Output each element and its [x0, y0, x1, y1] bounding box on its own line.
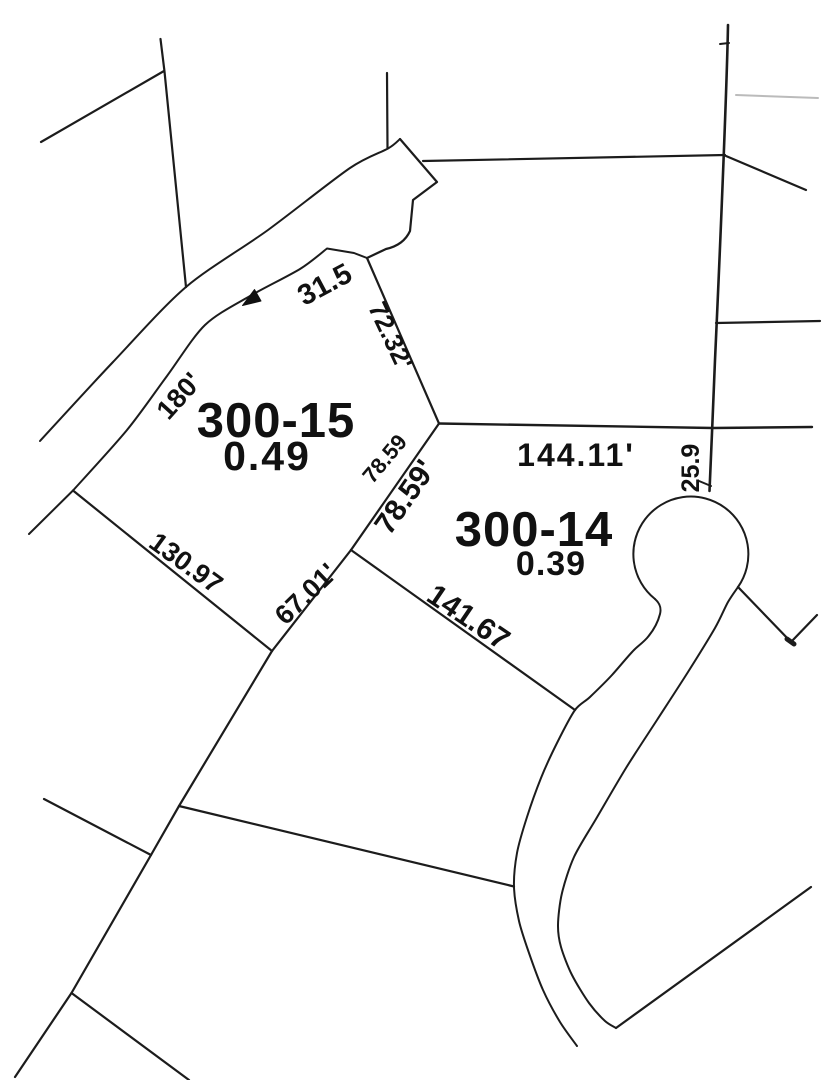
- svg-text:25.9: 25.9: [677, 444, 705, 493]
- svg-text:72.32': 72.32': [362, 297, 419, 374]
- svg-text:0.49: 0.49: [223, 433, 311, 479]
- svg-text:130.97: 130.97: [144, 527, 228, 600]
- svg-text:144.11': 144.11': [517, 437, 635, 473]
- svg-text:31.5: 31.5: [293, 258, 358, 313]
- svg-text:141.67: 141.67: [421, 578, 516, 657]
- svg-text:0.39: 0.39: [516, 545, 586, 583]
- svg-text:67.01': 67.01': [269, 558, 343, 631]
